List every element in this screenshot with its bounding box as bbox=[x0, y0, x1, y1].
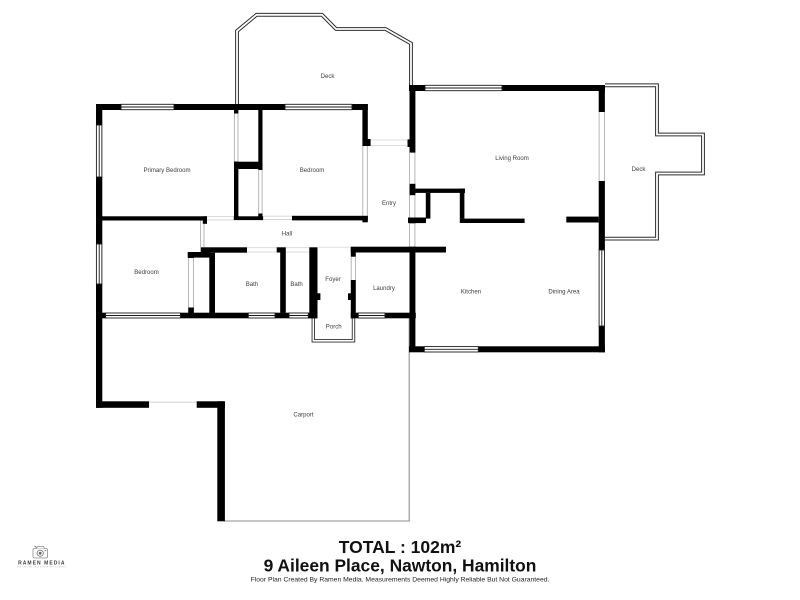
svg-text:9 Aileen Place, Nawton, Hamilt: 9 Aileen Place, Nawton, Hamilton bbox=[264, 556, 537, 576]
svg-text:RAMEN MEDIA: RAMEN MEDIA bbox=[18, 560, 65, 566]
svg-text:Kitchen: Kitchen bbox=[461, 290, 481, 296]
svg-text:Bedroom: Bedroom bbox=[300, 168, 325, 174]
svg-text:Deck: Deck bbox=[321, 74, 336, 80]
svg-text:THE OFFICIAL REAL ESTATE PHOTO: THE OFFICIAL REAL ESTATE PHOTOGRAPHY bbox=[17, 566, 67, 569]
svg-text:Bath: Bath bbox=[290, 282, 302, 288]
svg-text:Floor Plan Created By Ramen Me: Floor Plan Created By Ramen Media. Measu… bbox=[251, 577, 550, 584]
svg-text:Porch: Porch bbox=[326, 325, 342, 331]
svg-text:Primary Bedroom: Primary Bedroom bbox=[143, 168, 190, 174]
svg-text:Laundry: Laundry bbox=[373, 286, 396, 292]
svg-text:Foyer: Foyer bbox=[325, 277, 340, 283]
svg-text:Entry: Entry bbox=[382, 201, 397, 207]
svg-text:Dining Area: Dining Area bbox=[548, 290, 580, 296]
svg-text:TOTAL : 102m²: TOTAL : 102m² bbox=[339, 537, 462, 557]
svg-text:Deck: Deck bbox=[632, 167, 647, 173]
svg-text:Bath: Bath bbox=[246, 282, 258, 288]
svg-text:Living Room: Living Room bbox=[495, 156, 529, 162]
svg-text:Hall: Hall bbox=[282, 232, 292, 238]
svg-text:Carport: Carport bbox=[293, 413, 313, 419]
svg-text:Bedroom: Bedroom bbox=[134, 270, 159, 276]
